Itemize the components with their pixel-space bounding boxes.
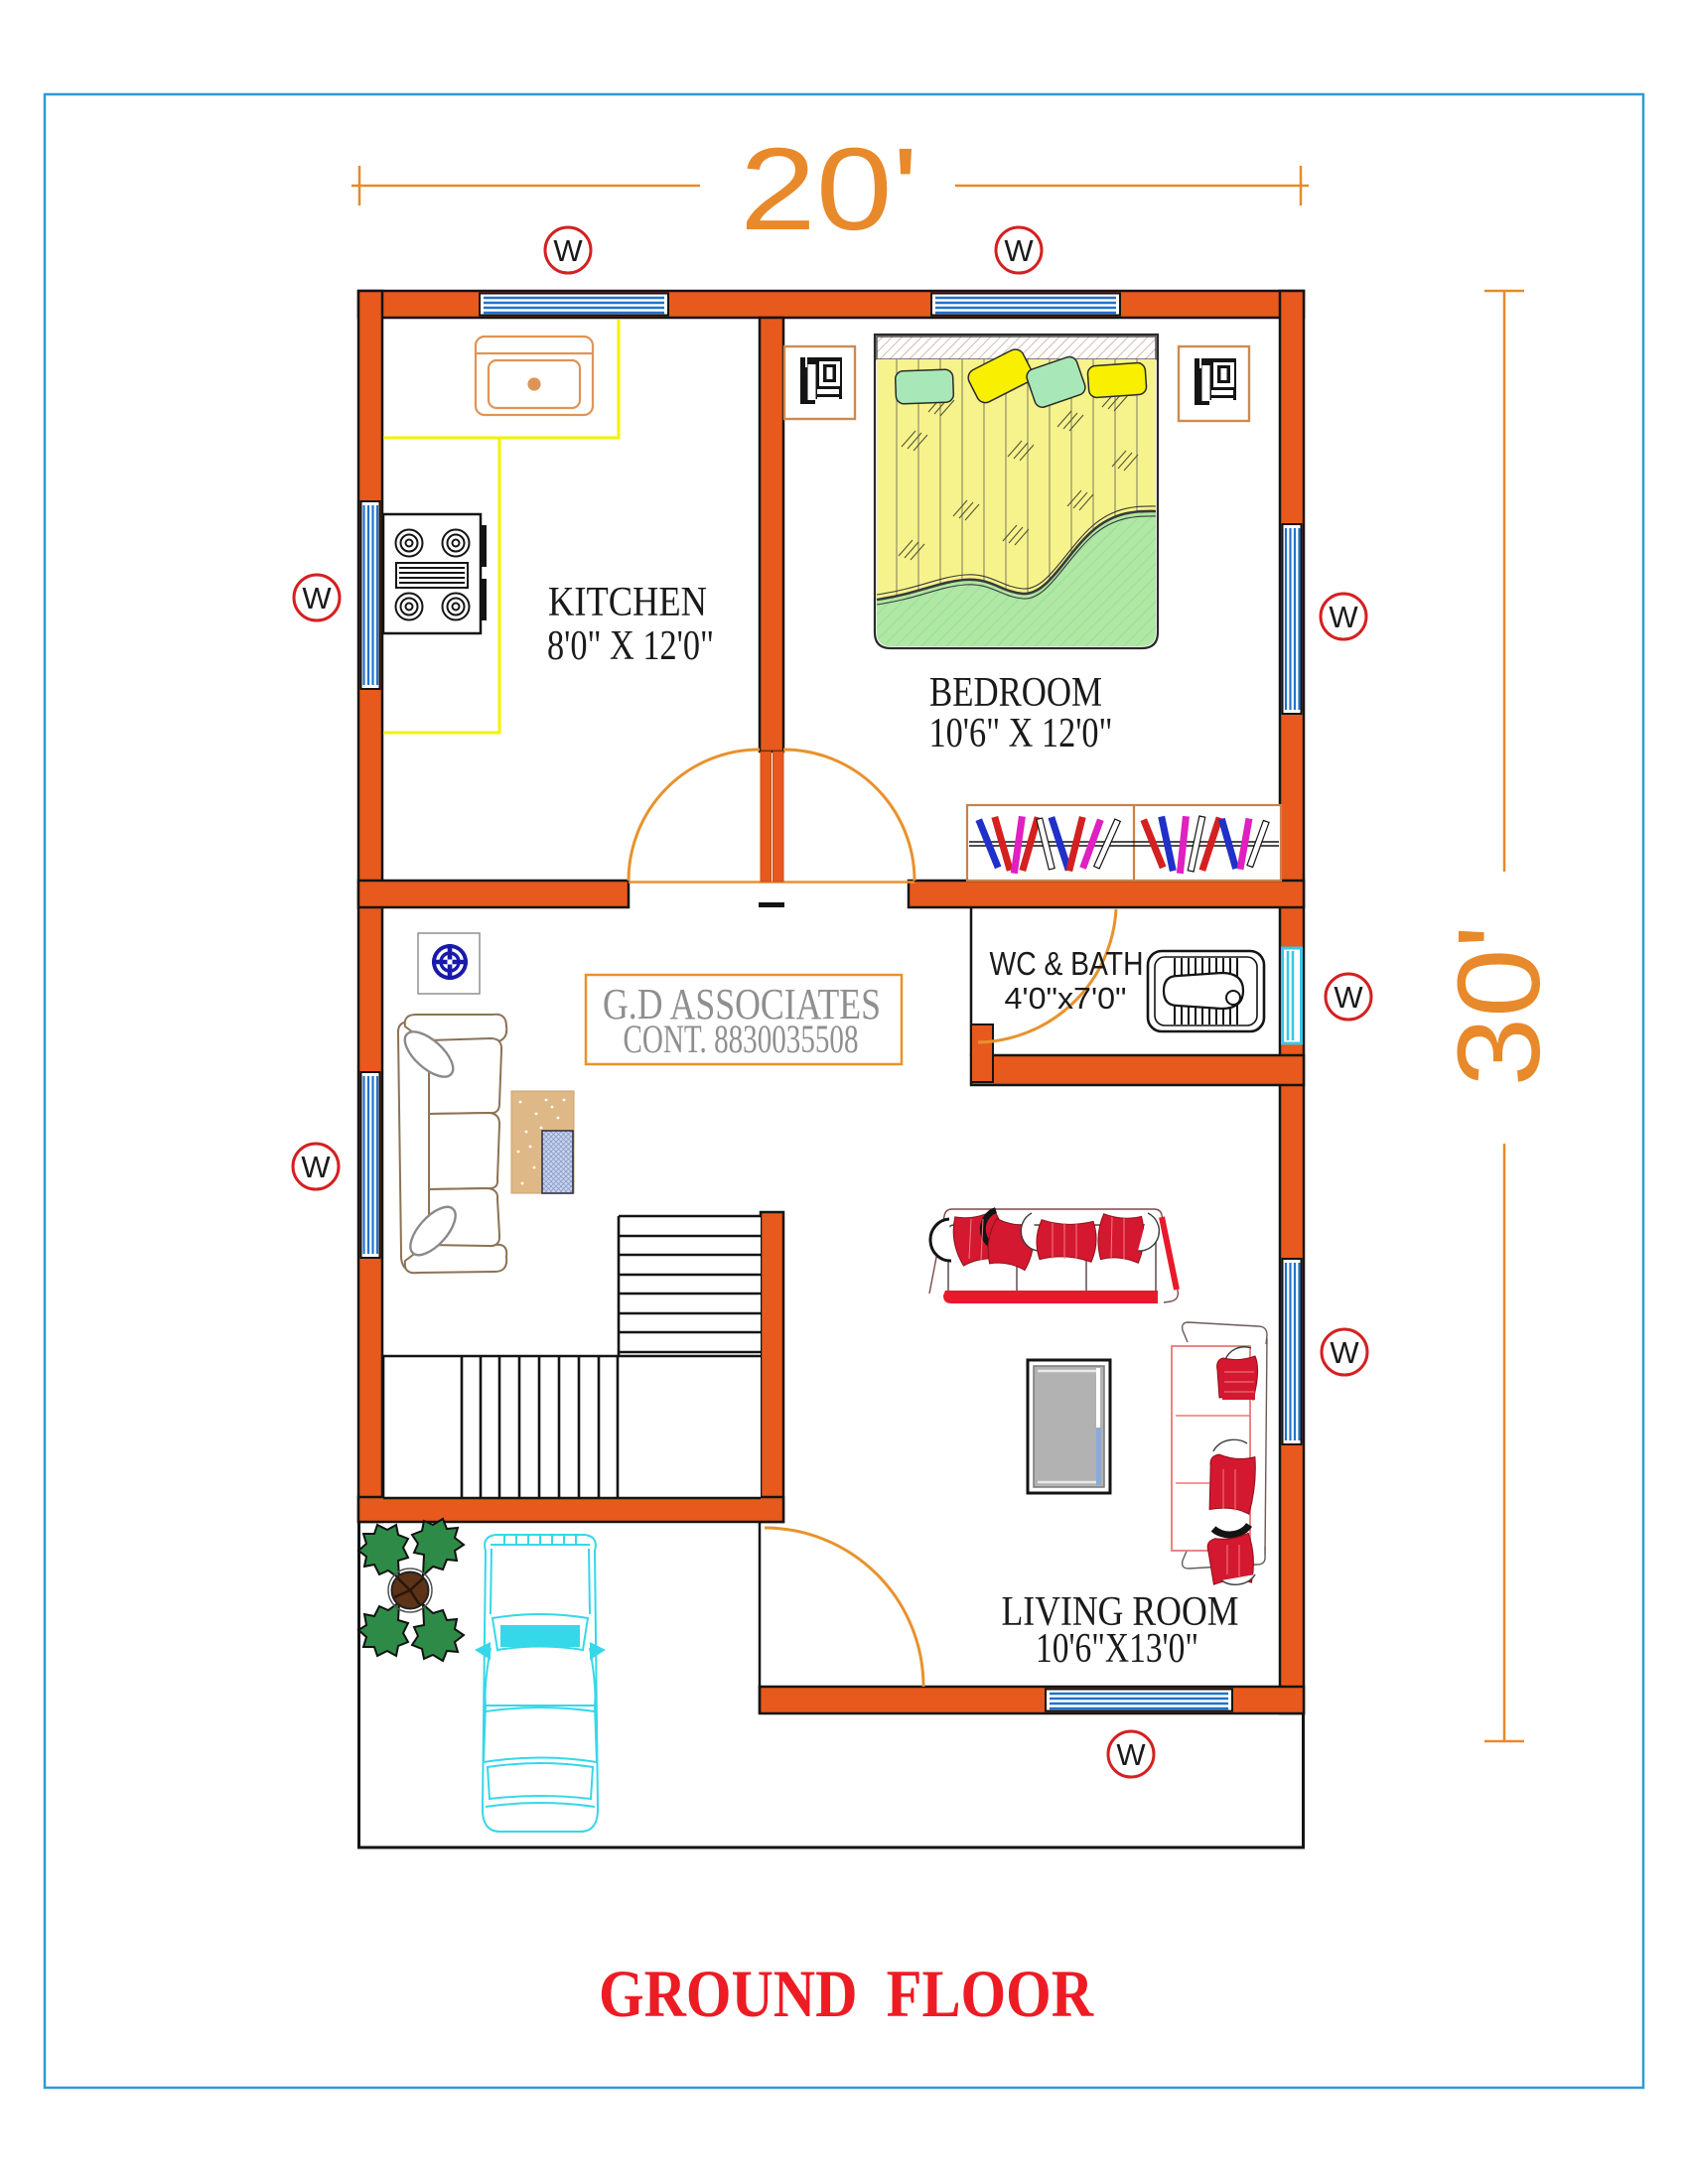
svg-text:GROUND FLOOR: GROUND FLOOR bbox=[599, 1956, 1094, 2031]
svg-text:BEDROOM: BEDROOM bbox=[929, 670, 1102, 716]
svg-text:W: W bbox=[1116, 1737, 1146, 1772]
svg-text:WC & BATH: WC & BATH bbox=[990, 945, 1144, 982]
svg-text:20': 20' bbox=[740, 124, 918, 255]
svg-text:30': 30' bbox=[1434, 925, 1565, 1087]
svg-text:4'0"x7'0": 4'0"x7'0" bbox=[1005, 981, 1127, 1016]
svg-text:10'6" X 12'0": 10'6" X 12'0" bbox=[929, 711, 1113, 756]
svg-text:CONT. 8830035508: CONT. 8830035508 bbox=[624, 1017, 859, 1061]
svg-text:W: W bbox=[553, 233, 583, 268]
svg-text:W: W bbox=[302, 581, 332, 615]
svg-text:W: W bbox=[1004, 233, 1034, 268]
svg-text:W: W bbox=[301, 1150, 331, 1184]
svg-text:10'6"X13'0": 10'6"X13'0" bbox=[1036, 1626, 1198, 1672]
svg-text:8'0" X 12'0": 8'0" X 12'0" bbox=[547, 623, 714, 669]
svg-text:W: W bbox=[1334, 980, 1363, 1015]
svg-text:W: W bbox=[1329, 600, 1358, 634]
svg-text:W: W bbox=[1330, 1335, 1359, 1370]
svg-text:KITCHEN: KITCHEN bbox=[548, 580, 707, 625]
